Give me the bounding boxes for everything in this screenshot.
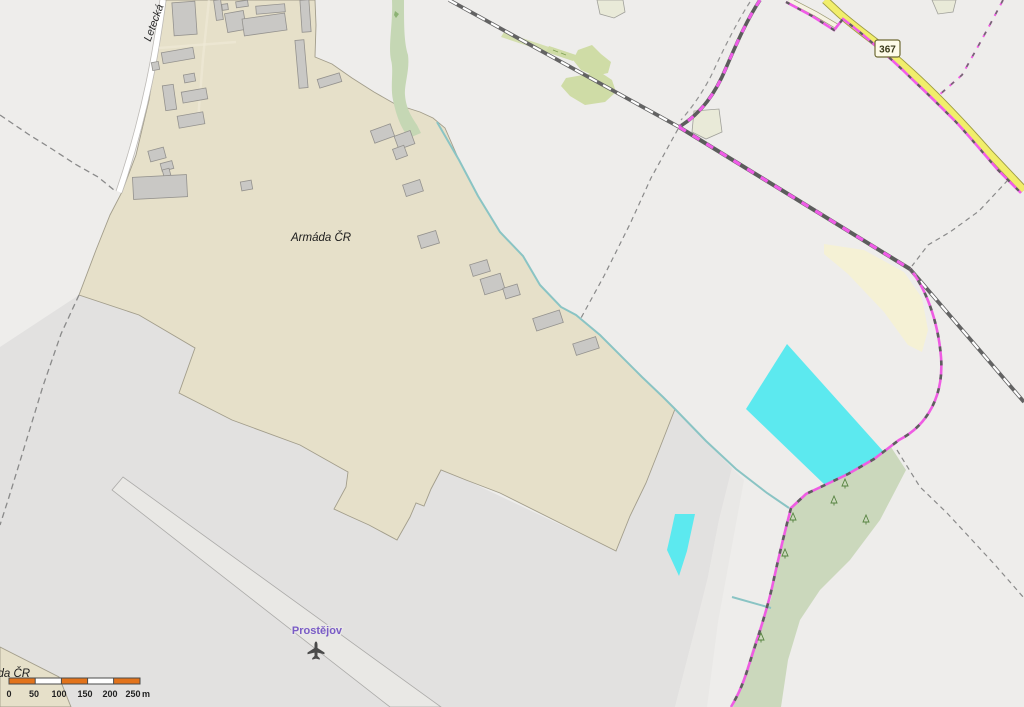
svg-text:50: 50 [29, 689, 39, 699]
svg-text:200: 200 [102, 689, 117, 699]
svg-text:Prostějov: Prostějov [292, 625, 343, 637]
svg-text:150: 150 [77, 689, 92, 699]
svg-text:Armáda ČR: Armáda ČR [290, 231, 351, 244]
svg-text:367: 367 [879, 45, 896, 56]
svg-text:100: 100 [51, 689, 66, 699]
svg-text:250: 250 [125, 689, 140, 699]
svg-text:0: 0 [6, 689, 11, 699]
svg-text:m: m [142, 689, 150, 699]
